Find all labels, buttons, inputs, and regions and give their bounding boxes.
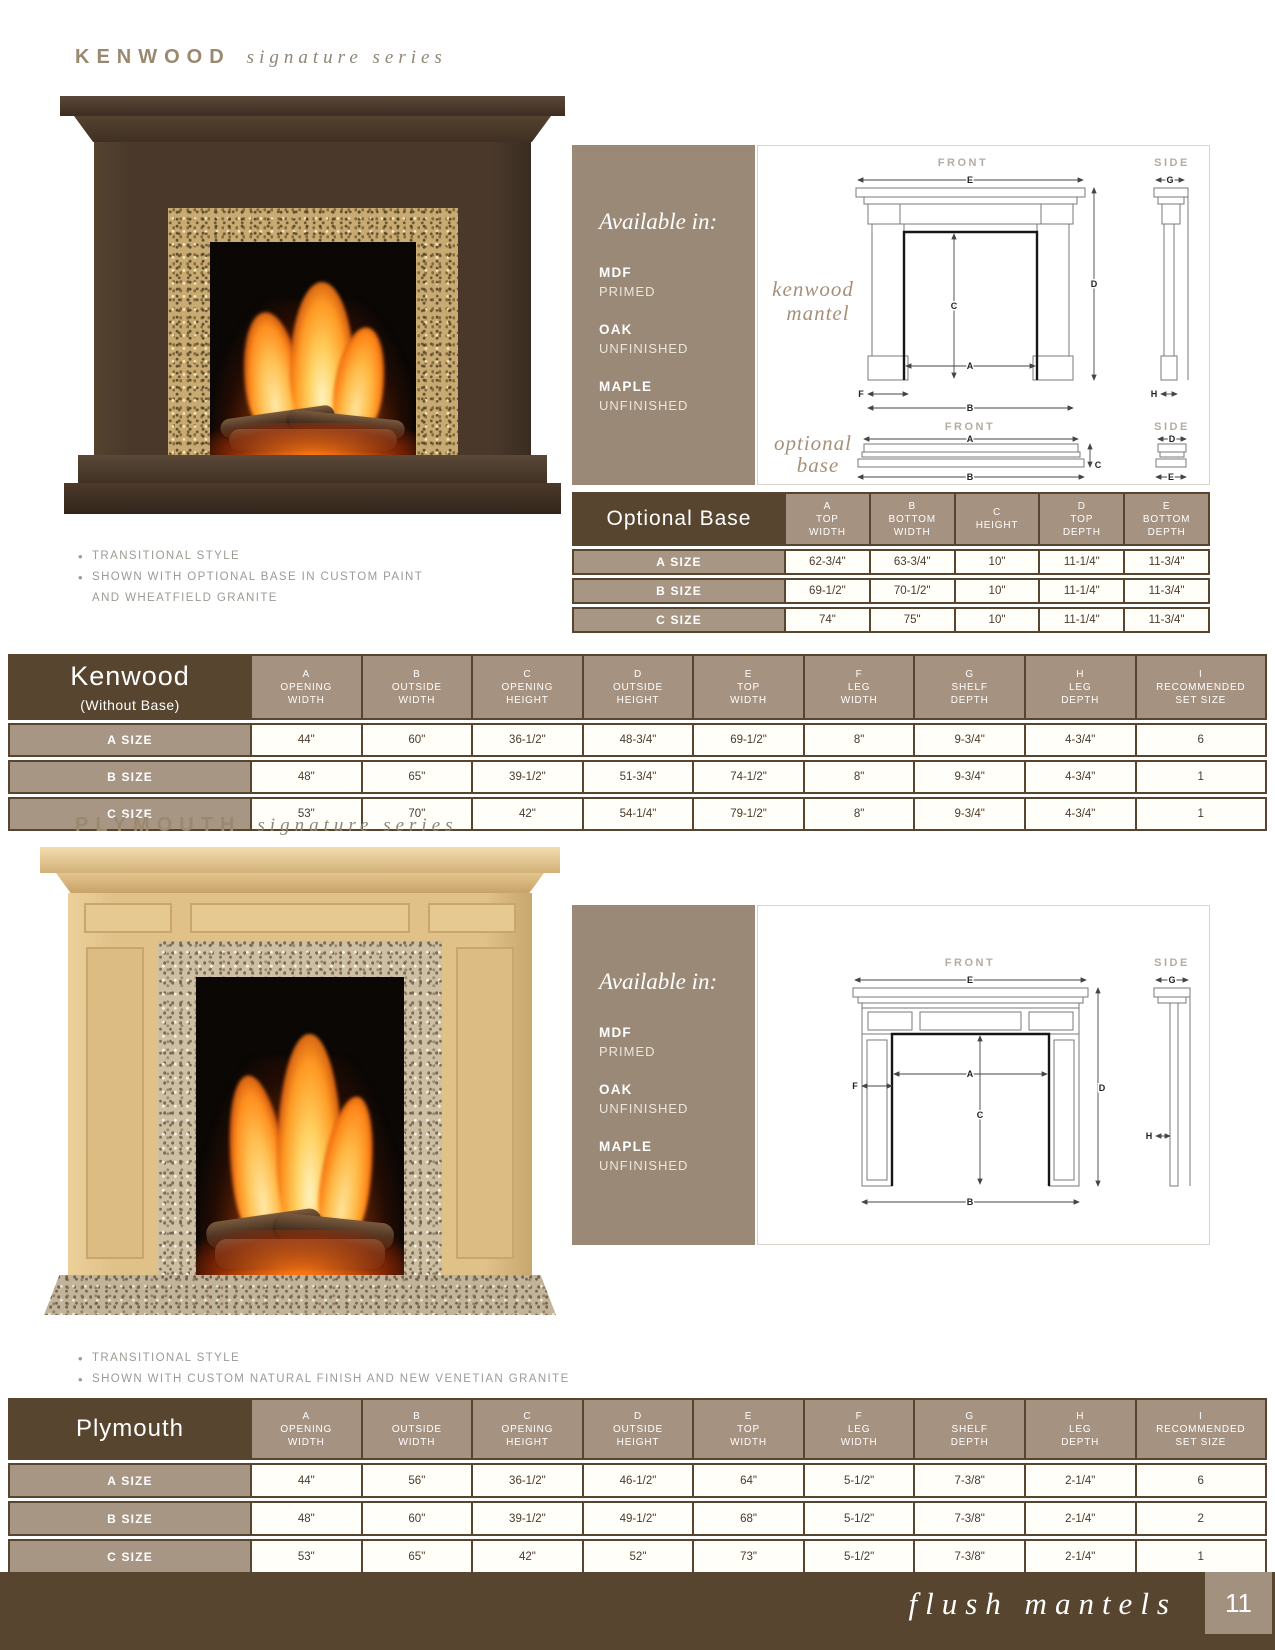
table-cell: 48" xyxy=(250,762,361,792)
table-row: A SIZE62-3/4"63-3/4"10"11-1/4"11-3/4" xyxy=(572,549,1210,575)
table-cell: 56" xyxy=(361,1465,472,1496)
table-cell: 74-1/2" xyxy=(692,762,803,792)
page-number: 11 xyxy=(1205,1572,1272,1634)
table-cell: 9-3/4" xyxy=(913,725,1024,755)
column-letter: D xyxy=(1078,500,1086,513)
table-cell: 51-3/4" xyxy=(582,762,693,792)
column-label: LEG DEPTH xyxy=(1061,1423,1099,1449)
plymouth-mantel-crown xyxy=(56,873,544,893)
front-view-label: FRONT xyxy=(938,157,988,169)
dim-e: E xyxy=(967,975,973,985)
material-name: MDF xyxy=(599,1025,755,1040)
column-letter: B xyxy=(413,1410,420,1423)
kenwood-available-panel: Available in: MDF PRIMED OAK UNFINISHED … xyxy=(572,145,755,485)
dim-f: F xyxy=(858,389,864,399)
table-cell: 39-1/2" xyxy=(471,1503,582,1534)
column-header: CHEIGHT xyxy=(954,494,1039,544)
column-label: BOTTOM DEPTH xyxy=(1143,513,1190,539)
table-cell: 75" xyxy=(869,609,954,631)
table-cell: 7-3/8" xyxy=(913,1541,1024,1572)
bullet-text: SHOWN WITH OPTIONAL BASE IN CUSTOM PAINT xyxy=(92,571,423,583)
column-letter: H xyxy=(1076,1410,1084,1423)
table-cell: 48" xyxy=(250,1503,361,1534)
base-front-label: FRONT xyxy=(945,421,995,433)
plymouth-bullets: TRANSITIONAL STYLE SHOWN WITH CUSTOM NAT… xyxy=(78,1352,570,1394)
kenwood-photo xyxy=(60,90,565,518)
material-name: OAK xyxy=(599,1082,755,1097)
material-option: MAPLE UNFINISHED xyxy=(599,1139,755,1173)
table-cell: 2 xyxy=(1135,1503,1265,1534)
table-title: Kenwood xyxy=(70,659,190,694)
material-finish: UNFINISHED xyxy=(599,1158,755,1173)
table-cell: 2-1/4" xyxy=(1024,1541,1135,1572)
kenwood-mantel-shelf xyxy=(60,96,565,116)
dim-g: G xyxy=(1166,175,1173,185)
base-caption-line1: optional xyxy=(774,431,852,455)
dim-c: C xyxy=(977,1110,984,1120)
column-header: GSHELF DEPTH xyxy=(913,656,1024,718)
kenwood-section-header: KENWOODsignature series xyxy=(75,46,447,69)
column-label: HEIGHT xyxy=(976,519,1019,532)
column-header: BOUTSIDE WIDTH xyxy=(361,656,472,718)
column-label: TOP WIDTH xyxy=(809,513,846,539)
plymouth-series-label: signature series xyxy=(257,815,457,836)
row-label: B SIZE xyxy=(574,580,784,602)
table-cell: 4-3/4" xyxy=(1024,799,1135,829)
column-label: SHELF DEPTH xyxy=(951,1423,989,1449)
table-cell: 69-1/2" xyxy=(692,725,803,755)
table-row: C SIZE74"75"10"11-1/4"11-3/4" xyxy=(572,607,1210,633)
table-cell: 60" xyxy=(361,725,472,755)
column-header: FLEG WIDTH xyxy=(803,1400,914,1458)
plymouth-line-drawing: FRONT SIDE E A F C D B xyxy=(758,906,1209,1244)
table-cell: 48-3/4" xyxy=(582,725,693,755)
dim-d: D xyxy=(1091,279,1098,289)
embers xyxy=(196,1230,404,1275)
table-cell: 7-3/8" xyxy=(913,1465,1024,1496)
plymouth-available-panel: Available in: MDF PRIMED OAK UNFINISHED … xyxy=(572,905,755,1245)
dim-a: A xyxy=(967,1069,974,1079)
table-cell: 54-1/4" xyxy=(582,799,693,829)
table-cell: 36-1/2" xyxy=(471,725,582,755)
table-row: A SIZE44"60"36-1/2"48-3/4"69-1/2"8"9-3/4… xyxy=(8,723,1267,757)
material-name: MAPLE xyxy=(599,379,755,394)
material-option: MDF PRIMED xyxy=(599,1025,755,1059)
base-side-label: SIDE xyxy=(1154,421,1190,433)
kenwood-base-step xyxy=(78,455,547,483)
table-cell: 60" xyxy=(361,1503,472,1534)
table-cell: 42" xyxy=(471,799,582,829)
column-letter: F xyxy=(856,668,863,681)
table-cell: 70-1/2" xyxy=(869,580,954,602)
dim-h: H xyxy=(1151,389,1158,399)
table-cell: 52" xyxy=(582,1541,693,1572)
optional-base-table: Optional BaseATOP WIDTHBBOTTOM WIDTHCHEI… xyxy=(572,492,1210,633)
catalog-page: KENWOODsignature series Available in: MD… xyxy=(0,0,1275,1650)
table-cell: 8" xyxy=(803,725,914,755)
table-cell: 65" xyxy=(361,1541,472,1572)
column-header: DOUTSIDE HEIGHT xyxy=(582,656,693,718)
kenwood-bullets: TRANSITIONAL STYLE SHOWN WITH OPTIONAL B… xyxy=(78,550,423,613)
column-header: DTOP DEPTH xyxy=(1038,494,1123,544)
table-row: B SIZE48"65"39-1/2"51-3/4"74-1/2"8"9-3/4… xyxy=(8,760,1267,794)
column-label: TOP WIDTH xyxy=(730,681,767,707)
column-label: LEG DEPTH xyxy=(1061,681,1099,707)
bullet-text: TRANSITIONAL STYLE xyxy=(92,550,240,562)
kenwood-size-table: Kenwood(Without Base)AOPENING WIDTHBOUTS… xyxy=(8,654,1267,831)
column-header: HLEG DEPTH xyxy=(1024,1400,1135,1458)
table-cell: 74" xyxy=(784,609,869,631)
row-label: B SIZE xyxy=(10,1503,250,1534)
plymouth-hearth xyxy=(44,1275,556,1315)
kenwood-base-plinth xyxy=(64,483,561,514)
table-cell: 2-1/4" xyxy=(1024,1503,1135,1534)
column-letter: C xyxy=(523,668,531,681)
table-cell: 42" xyxy=(471,1541,582,1572)
row-label: A SIZE xyxy=(10,1465,250,1496)
column-label: OUTSIDE WIDTH xyxy=(392,681,442,707)
material-finish: PRIMED xyxy=(599,1044,755,1059)
plymouth-diagram-panel: FRONT SIDE E A F C D B xyxy=(757,905,1210,1245)
diagram-caption-line2: mantel xyxy=(786,301,849,325)
table-cell: 79-1/2" xyxy=(692,799,803,829)
table-cell: 11-1/4" xyxy=(1038,609,1123,631)
table-cell: 44" xyxy=(250,1465,361,1496)
dim-f: F xyxy=(852,1081,858,1091)
plymouth-photo xyxy=(40,845,560,1321)
bullet-item: TRANSITIONAL STYLE xyxy=(78,550,423,562)
table-cell: 63-3/4" xyxy=(869,551,954,573)
material-finish: PRIMED xyxy=(599,284,755,299)
dim-b: B xyxy=(967,403,974,413)
row-label: C SIZE xyxy=(574,609,784,631)
table-row: A SIZE44"56"36-1/2"46-1/2"64"5-1/2"7-3/8… xyxy=(8,1463,1267,1498)
table-cell: 73" xyxy=(692,1541,803,1572)
plymouth-section-header: PLYMOUTHsignature series xyxy=(75,814,458,837)
bullet-item: SHOWN WITH CUSTOM NATURAL FINISH AND NEW… xyxy=(78,1373,570,1385)
table-title-cell: Kenwood(Without Base) xyxy=(10,656,250,718)
kenwood-series-label: signature series xyxy=(247,47,447,68)
plymouth-firebox xyxy=(196,977,404,1275)
table-header-row: PlymouthAOPENING WIDTHBOUTSIDE WIDTHCOPE… xyxy=(8,1398,1267,1460)
dim-c: C xyxy=(951,301,958,311)
table-subtitle: (Without Base) xyxy=(80,696,180,714)
table-cell: 4-3/4" xyxy=(1024,762,1135,792)
available-heading: Available in: xyxy=(599,209,755,235)
dim-e: E xyxy=(967,175,973,185)
available-heading: Available in: xyxy=(599,969,755,995)
table-cell: 9-3/4" xyxy=(913,799,1024,829)
material-option: OAK UNFINISHED xyxy=(599,1082,755,1116)
table-cell: 62-3/4" xyxy=(784,551,869,573)
column-header: FLEG WIDTH xyxy=(803,656,914,718)
material-option: OAK UNFINISHED xyxy=(599,322,755,356)
table-cell: 53" xyxy=(250,1541,361,1572)
column-label: TOP WIDTH xyxy=(730,1423,767,1449)
plymouth-frieze-panel xyxy=(428,903,516,933)
column-header: ATOP WIDTH xyxy=(784,494,869,544)
embers xyxy=(210,423,416,455)
dim-b: B xyxy=(967,1197,974,1207)
bullet-item: TRANSITIONAL STYLE xyxy=(78,1352,570,1364)
column-header: ETOP WIDTH xyxy=(692,1400,803,1458)
side-view-label: SIDE xyxy=(1154,957,1190,969)
column-header: DOUTSIDE HEIGHT xyxy=(582,1400,693,1458)
column-letter: C xyxy=(993,506,1001,519)
column-letter: I xyxy=(1199,668,1203,681)
column-header: BOUTSIDE WIDTH xyxy=(361,1400,472,1458)
table-cell: 46-1/2" xyxy=(582,1465,693,1496)
bullet-text: TRANSITIONAL STYLE xyxy=(92,1352,240,1364)
material-name: MAPLE xyxy=(599,1139,755,1154)
table-title-cell: Optional Base xyxy=(574,494,784,544)
row-label: A SIZE xyxy=(10,725,250,755)
column-header: EBOTTOM DEPTH xyxy=(1123,494,1208,544)
table-cell: 6 xyxy=(1135,1465,1265,1496)
plymouth-leg-panel xyxy=(86,947,144,1259)
column-letter: B xyxy=(908,500,915,513)
base-dim-b: B xyxy=(967,472,974,482)
plymouth-frieze-panel xyxy=(190,903,410,933)
column-letter: A xyxy=(824,500,831,513)
table-cell: 1 xyxy=(1135,762,1265,792)
column-label: OPENING WIDTH xyxy=(280,681,332,707)
table-cell: 5-1/2" xyxy=(803,1541,914,1572)
table-header-row: Optional BaseATOP WIDTHBBOTTOM WIDTHCHEI… xyxy=(572,492,1210,546)
table-cell: 10" xyxy=(954,551,1039,573)
column-header: AOPENING WIDTH xyxy=(250,656,361,718)
column-letter: D xyxy=(634,668,642,681)
material-option: MDF PRIMED xyxy=(599,265,755,299)
base-dim-c: C xyxy=(1095,460,1102,470)
table-row: B SIZE69-1/2"70-1/2"10"11-1/4"11-3/4" xyxy=(572,578,1210,604)
plymouth-frieze-panel xyxy=(84,903,172,933)
material-option: MAPLE UNFINISHED xyxy=(599,379,755,413)
column-label: BOTTOM WIDTH xyxy=(888,513,935,539)
table-cell: 11-3/4" xyxy=(1123,551,1208,573)
table-cell: 7-3/8" xyxy=(913,1503,1024,1534)
column-header: COPENING HEIGHT xyxy=(471,656,582,718)
table-cell: 49-1/2" xyxy=(582,1503,693,1534)
dim-g: G xyxy=(1168,975,1175,985)
column-letter: E xyxy=(1163,500,1170,513)
table-header-row: Kenwood(Without Base)AOPENING WIDTHBOUTS… xyxy=(8,654,1267,720)
kenwood-mantel-crown xyxy=(74,116,551,142)
column-letter: G xyxy=(965,1410,974,1423)
side-view-label: SIDE xyxy=(1154,157,1190,169)
plymouth-title: PLYMOUTH xyxy=(75,814,241,836)
table-cell: 8" xyxy=(803,799,914,829)
column-label: OUTSIDE HEIGHT xyxy=(613,1423,663,1449)
table-title: Optional Base xyxy=(607,505,752,532)
material-name: MDF xyxy=(599,265,755,280)
material-finish: UNFINISHED xyxy=(599,398,755,413)
column-label: LEG WIDTH xyxy=(841,1423,878,1449)
front-view-label: FRONT xyxy=(945,957,995,969)
table-cell: 1 xyxy=(1135,1541,1265,1572)
column-letter: E xyxy=(745,1410,752,1423)
table-cell: 44" xyxy=(250,725,361,755)
column-header: COPENING HEIGHT xyxy=(471,1400,582,1458)
kenwood-diagram-panel: FRONT SIDE kenwood mantel E C A D xyxy=(757,145,1210,485)
table-cell: 68" xyxy=(692,1503,803,1534)
table-cell: 4-3/4" xyxy=(1024,725,1135,755)
column-header: AOPENING WIDTH xyxy=(250,1400,361,1458)
column-label: OPENING HEIGHT xyxy=(502,1423,554,1449)
footer-bar: flush mantels xyxy=(0,1572,1275,1650)
plymouth-mantel-shelf xyxy=(40,847,560,873)
dim-a: A xyxy=(967,361,974,371)
column-letter: B xyxy=(413,668,420,681)
table-row: C SIZE53"65"42"52"73"5-1/2"7-3/8"2-1/4"1 xyxy=(8,1539,1267,1574)
bullet-item: SHOWN WITH OPTIONAL BASE IN CUSTOM PAINT xyxy=(78,571,423,583)
material-finish: UNFINISHED xyxy=(599,1101,755,1116)
table-cell: 1 xyxy=(1135,799,1265,829)
column-header: ETOP WIDTH xyxy=(692,656,803,718)
column-header: BBOTTOM WIDTH xyxy=(869,494,954,544)
column-label: SHELF DEPTH xyxy=(951,681,989,707)
bullet-text: AND WHEATFIELD GRANITE xyxy=(92,592,278,604)
table-title-cell: Plymouth xyxy=(10,1400,250,1458)
material-finish: UNFINISHED xyxy=(599,341,755,356)
plymouth-size-table: PlymouthAOPENING WIDTHBOUTSIDE WIDTHCOPE… xyxy=(8,1398,1267,1574)
row-label: A SIZE xyxy=(574,551,784,573)
dim-h: H xyxy=(1146,1131,1153,1141)
column-letter: C xyxy=(523,1410,531,1423)
column-letter: D xyxy=(634,1410,642,1423)
table-cell: 10" xyxy=(954,580,1039,602)
table-cell: 2-1/4" xyxy=(1024,1465,1135,1496)
column-letter: I xyxy=(1199,1410,1203,1423)
column-letter: H xyxy=(1076,668,1084,681)
table-cell: 11-3/4" xyxy=(1123,580,1208,602)
column-label: OUTSIDE HEIGHT xyxy=(613,681,663,707)
table-row: B SIZE48"60"39-1/2"49-1/2"68"5-1/2"7-3/8… xyxy=(8,1501,1267,1536)
column-header: IRECOMMENDED SET SIZE xyxy=(1135,1400,1265,1458)
column-letter: F xyxy=(856,1410,863,1423)
base-dim-d: D xyxy=(1169,434,1176,444)
base-dim-a: A xyxy=(967,434,974,444)
column-letter: A xyxy=(303,1410,310,1423)
row-label: B SIZE xyxy=(10,762,250,792)
table-title: Plymouth xyxy=(76,1413,184,1444)
column-letter: A xyxy=(303,668,310,681)
plymouth-leg-panel xyxy=(456,947,514,1259)
column-header: GSHELF DEPTH xyxy=(913,1400,1024,1458)
table-cell: 65" xyxy=(361,762,472,792)
table-cell: 36-1/2" xyxy=(471,1465,582,1496)
base-dim-e: E xyxy=(1168,472,1174,482)
table-cell: 69-1/2" xyxy=(784,580,869,602)
bullet-text: SHOWN WITH CUSTOM NATURAL FINISH AND NEW… xyxy=(92,1373,570,1385)
kenwood-title: KENWOOD xyxy=(75,46,231,68)
column-label: OPENING HEIGHT xyxy=(502,681,554,707)
base-caption-line2: base xyxy=(797,453,840,477)
column-header: HLEG DEPTH xyxy=(1024,656,1135,718)
kenwood-firebox xyxy=(210,242,416,455)
table-cell: 8" xyxy=(803,762,914,792)
column-label: TOP DEPTH xyxy=(1063,513,1101,539)
table-cell: 11-1/4" xyxy=(1038,551,1123,573)
footer-label: flush mantels xyxy=(909,1586,1177,1622)
column-label: RECOMMENDED SET SIZE xyxy=(1156,681,1245,707)
material-name: OAK xyxy=(599,322,755,337)
bullet-item-continuation: AND WHEATFIELD GRANITE xyxy=(78,592,423,604)
table-cell: 11-3/4" xyxy=(1123,609,1208,631)
column-label: RECOMMENDED SET SIZE xyxy=(1156,1423,1245,1449)
column-label: OPENING WIDTH xyxy=(280,1423,332,1449)
column-letter: E xyxy=(745,668,752,681)
column-header: IRECOMMENDED SET SIZE xyxy=(1135,656,1265,718)
column-letter: G xyxy=(965,668,974,681)
table-cell: 6 xyxy=(1135,725,1265,755)
row-label: C SIZE xyxy=(10,1541,250,1572)
column-label: LEG WIDTH xyxy=(841,681,878,707)
kenwood-line-drawing: FRONT SIDE kenwood mantel E C A D xyxy=(758,146,1209,484)
diagram-caption-line1: kenwood xyxy=(772,277,854,301)
column-label: OUTSIDE WIDTH xyxy=(392,1423,442,1449)
table-cell: 11-1/4" xyxy=(1038,580,1123,602)
table-cell: 64" xyxy=(692,1465,803,1496)
table-cell: 5-1/2" xyxy=(803,1503,914,1534)
table-cell: 9-3/4" xyxy=(913,762,1024,792)
table-cell: 5-1/2" xyxy=(803,1465,914,1496)
table-cell: 39-1/2" xyxy=(471,762,582,792)
dim-d: D xyxy=(1099,1083,1106,1093)
table-cell: 10" xyxy=(954,609,1039,631)
